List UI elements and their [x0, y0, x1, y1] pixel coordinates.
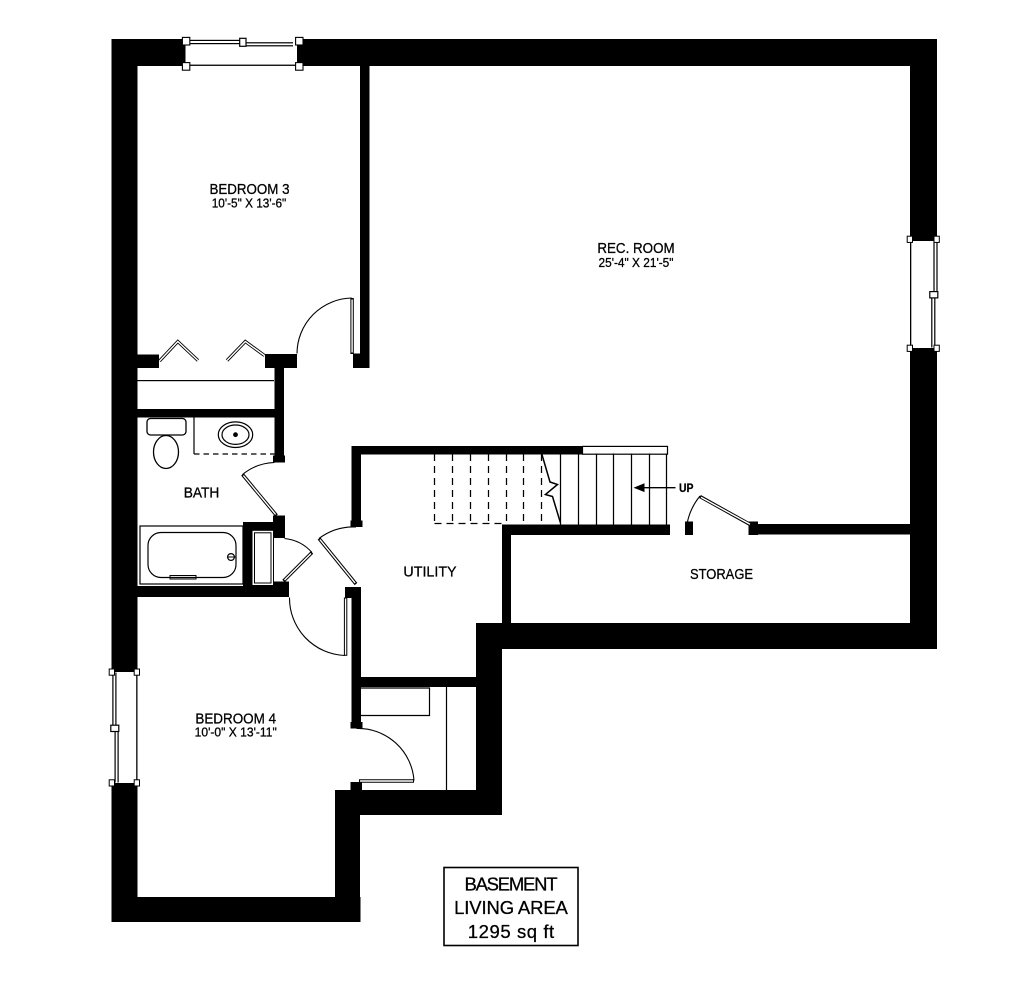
svg-text:BATH: BATH — [184, 485, 220, 502]
svg-text:LIVING AREA: LIVING AREA — [454, 897, 568, 918]
svg-text:STORAGE: STORAGE — [690, 566, 753, 583]
svg-text:UTILITY: UTILITY — [403, 564, 456, 581]
svg-text:10'-5" X 13'-6": 10'-5" X 13'-6" — [212, 197, 287, 211]
svg-text:1295 sq ft: 1295 sq ft — [468, 921, 554, 942]
svg-text:UP: UP — [679, 483, 694, 495]
svg-text:10'-0" X 13'-11": 10'-0" X 13'-11" — [195, 726, 277, 740]
svg-text:BEDROOM 3: BEDROOM 3 — [210, 181, 290, 198]
svg-text:REC. ROOM: REC. ROOM — [597, 240, 674, 257]
svg-text:25'-4" X 21'-5": 25'-4" X 21'-5" — [599, 256, 674, 270]
svg-text:BASEMENT: BASEMENT — [465, 874, 558, 895]
